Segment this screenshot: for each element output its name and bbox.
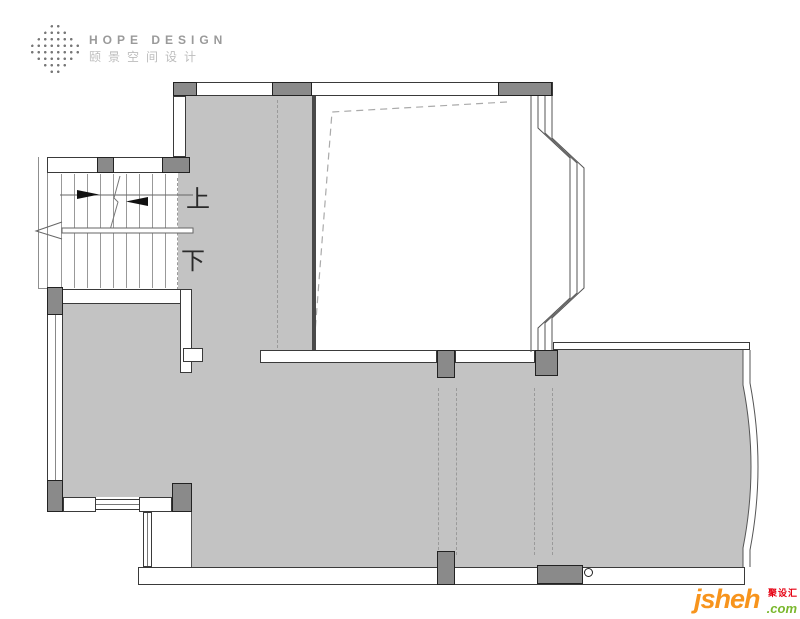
window-glass-line: [147, 513, 148, 566]
wall-lower-left-bottom-a: [63, 497, 96, 512]
bay-window-line: [552, 96, 584, 352]
column: [272, 82, 312, 96]
hope-design-diamond-icon: [27, 21, 84, 78]
arrow-right-icon: [77, 190, 99, 199]
column: [173, 82, 197, 96]
ceiling-dashed-line: [277, 100, 278, 348]
left-window-mullion-line: [55, 315, 56, 480]
window-vertical: [143, 512, 152, 567]
column: [498, 82, 552, 96]
wall-lower-left-top: [47, 289, 183, 304]
window-horizontal: [95, 499, 140, 510]
wall-jog: [183, 348, 203, 362]
upper-room-dashed-outline: [310, 95, 515, 340]
watermark-cn-name: 聚设汇: [768, 586, 798, 599]
column: [437, 350, 455, 378]
beam-dashed-line: [456, 388, 457, 555]
bay-window-top-right: [520, 90, 600, 360]
stair-break-line: [110, 176, 120, 230]
wall-middle-a: [260, 350, 437, 363]
beam-dashed-line: [534, 388, 535, 555]
room-edge-line: [191, 512, 192, 567]
stair-up-label: 上: [186, 188, 210, 212]
watermark-tld: .com: [767, 601, 797, 616]
room-fill-upper-left-a: [186, 96, 313, 156]
room-fill-passage: [180, 373, 192, 497]
column: [47, 480, 63, 512]
door-threshold-block: [537, 565, 583, 584]
watermark: jsheh 聚设汇 .com: [694, 585, 798, 617]
stair-arrowhead-icon: [36, 222, 62, 239]
wall-top: [173, 82, 553, 96]
bow-window-right: [735, 340, 775, 590]
room-fill-lower-main: [192, 362, 743, 567]
wall-inner-partition: [312, 96, 316, 350]
bay-window-line: [545, 96, 577, 352]
stair-down-label: 下: [181, 250, 205, 274]
watermark-site-name: jsheh: [694, 584, 760, 615]
room-fill-door-opening: [200, 352, 260, 362]
room-fill-lower-left: [63, 304, 180, 497]
column: [437, 551, 455, 585]
stair-long-arrow-shaft: [62, 228, 193, 233]
beam-dashed-line: [552, 388, 553, 555]
column: [172, 483, 192, 512]
window-glass-line: [96, 504, 139, 505]
column: [47, 287, 63, 315]
logo-title: HOPE DESIGN: [89, 33, 227, 47]
door-pivot-circle: [584, 568, 593, 577]
wall-lower-left-bottom-b: [139, 497, 172, 512]
logo-subtitle: 颐景空间设计: [89, 48, 203, 65]
stair-direction-arrows: [30, 170, 200, 250]
floor-plan-page: HOPE DESIGN 颐景空间设计 上 下: [0, 0, 800, 619]
column: [97, 157, 114, 173]
wall-upper-left: [173, 96, 186, 157]
arrow-left-icon: [126, 197, 148, 206]
column: [535, 350, 558, 376]
beam-dashed-line: [438, 388, 439, 555]
bay-window-line: [538, 96, 570, 352]
column: [162, 157, 190, 173]
